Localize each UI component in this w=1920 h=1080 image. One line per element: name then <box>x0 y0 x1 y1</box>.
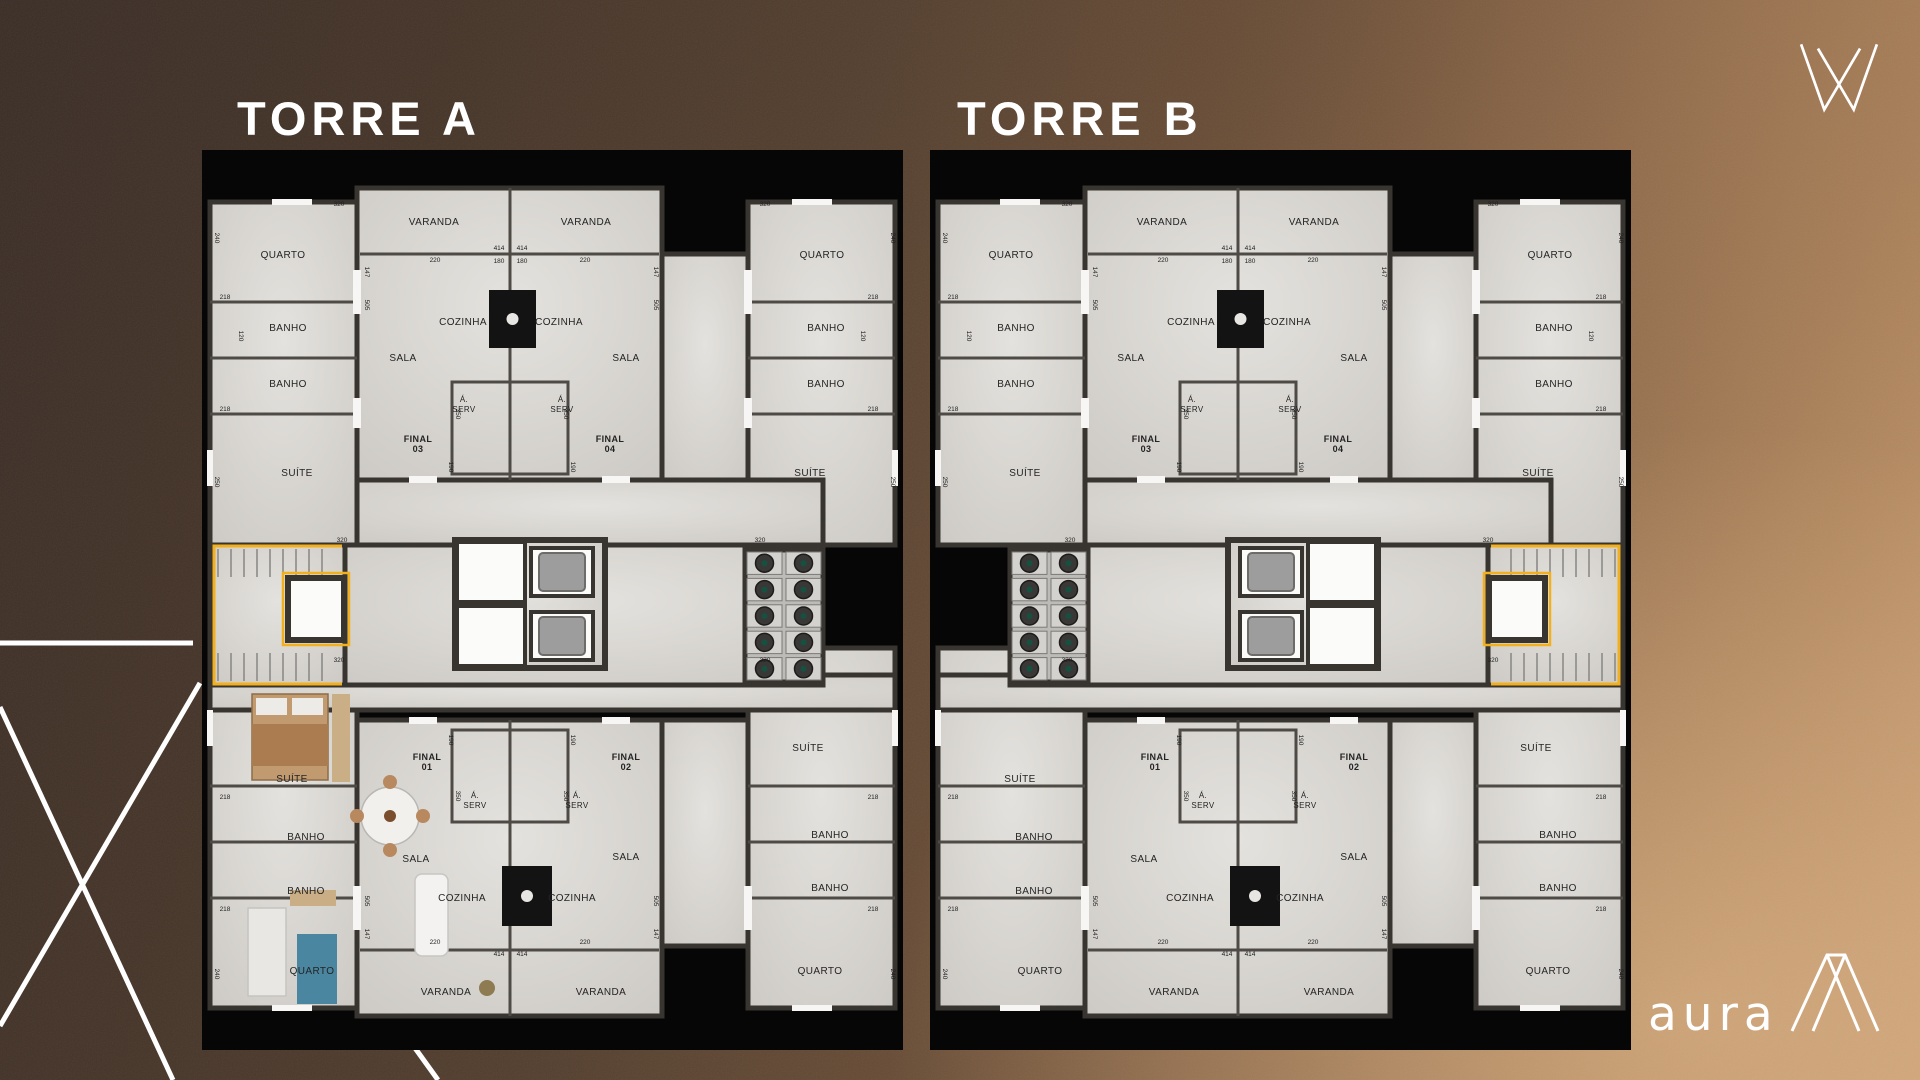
dimension-label: 240 <box>213 233 220 244</box>
dimension-label: 120 <box>859 331 866 342</box>
dimension-label: 218 <box>1596 406 1607 413</box>
room-label: VARANDA <box>1137 217 1187 228</box>
dimension-label: 147 <box>1380 929 1387 940</box>
room-label: QUARTO <box>1526 966 1571 977</box>
room-label: SALA <box>1117 353 1144 364</box>
dimension-label: 218 <box>220 794 231 801</box>
room-label: SUÍTE <box>276 772 307 785</box>
presentation-canvas: TORRE A TORRE B QUARTOQUARTOVARANDAVARAN… <box>0 0 1920 1080</box>
room-label: VARANDA <box>1289 217 1339 228</box>
dimension-label: 350 <box>454 791 461 802</box>
dimension-label: 414 <box>1222 245 1233 252</box>
dimension-label: 220 <box>430 939 441 946</box>
dimension-label: 350 <box>562 409 569 420</box>
dimension-label: 218 <box>868 906 879 913</box>
dimension-label: 414 <box>494 245 505 252</box>
room-label: SUÍTE <box>1004 772 1035 785</box>
room-label: BANHO <box>811 883 849 894</box>
room-label: COZINHA <box>535 317 583 328</box>
room-label: BANHO <box>811 830 849 841</box>
dimension-label: 147 <box>1380 267 1387 278</box>
dimension-label: 240 <box>941 233 948 244</box>
dimension-label: 240 <box>1617 233 1624 244</box>
dimension-label: 147 <box>1091 929 1098 940</box>
dimension-label: 218 <box>220 294 231 301</box>
dimension-label: 414 <box>1245 245 1256 252</box>
dimension-label: 350 <box>1182 791 1189 802</box>
dimension-label: 414 <box>517 245 528 252</box>
room-label: BANHO <box>1535 323 1573 334</box>
room-label: QUARTO <box>1528 250 1573 261</box>
room-label: QUARTO <box>989 250 1034 261</box>
dimension-label: 147 <box>363 267 370 278</box>
room-label: BANHO <box>997 323 1035 334</box>
dimension-label: 320 <box>1062 201 1073 208</box>
dimension-label: 218 <box>1596 794 1607 801</box>
room-label: SALA <box>389 353 416 364</box>
dimension-label: 505 <box>1091 300 1098 311</box>
dimension-label: 350 <box>1290 791 1297 802</box>
dimension-label: 220 <box>580 257 591 264</box>
plan-root: QUARTOQUARTOVARANDAVARANDABANHOBANHOBANH… <box>935 188 1626 1016</box>
room-label: QUARTO <box>800 250 845 261</box>
dimension-label: 147 <box>363 929 370 940</box>
dimension-label: 220 <box>1308 939 1319 946</box>
dimension-label: 220 <box>1158 257 1169 264</box>
dimension-label: 190 <box>1297 462 1304 473</box>
room-label: BANHO <box>1539 883 1577 894</box>
dimension-label: 120 <box>965 331 972 342</box>
dimension-label: 190 <box>1297 735 1304 746</box>
room-label: BANHO <box>1015 886 1053 897</box>
dimension-label: 190 <box>447 462 454 473</box>
room-label: BANHO <box>269 379 307 390</box>
room-label: VARANDA <box>576 987 626 998</box>
tower-b-panel: QUARTOQUARTOVARANDAVARANDABANHOBANHOBANH… <box>930 150 1631 1050</box>
dimension-label: 147 <box>652 929 659 940</box>
room-label: SALA <box>1340 852 1367 863</box>
room-label: VARANDA <box>409 217 459 228</box>
room-label: SUÍTE <box>1009 466 1040 479</box>
dimension-label: 220 <box>580 939 591 946</box>
room-label: QUARTO <box>290 966 335 977</box>
aura-logo: aura <box>1648 952 1881 1034</box>
dimension-label: 350 <box>562 791 569 802</box>
room-label: COZINHA <box>1166 893 1214 904</box>
room-label: VARANDA <box>561 217 611 228</box>
dimension-label: 505 <box>652 300 659 311</box>
room-label: QUARTO <box>1018 966 1063 977</box>
room-label: VARANDA <box>421 987 471 998</box>
dimension-label: 250 <box>1617 477 1624 488</box>
dimension-label: 505 <box>652 896 659 907</box>
a-frame-mark-icon <box>1789 952 1881 1034</box>
dimension-label: 320 <box>760 657 771 664</box>
dimension-label: 320 <box>1488 201 1499 208</box>
dimension-label: 218 <box>868 406 879 413</box>
dimension-label: 218 <box>948 906 959 913</box>
room-label: BANHO <box>269 323 307 334</box>
room-label: COZINHA <box>438 893 486 904</box>
room-label: BANHO <box>997 379 1035 390</box>
dimension-label: 250 <box>941 477 948 488</box>
dimension-label: 147 <box>652 267 659 278</box>
plan-root: QUARTOQUARTOVARANDAVARANDABANHOBANHOBANH… <box>207 188 898 1016</box>
dimension-label: 414 <box>1222 951 1233 958</box>
dimension-label: 414 <box>517 951 528 958</box>
room-label: COZINHA <box>548 893 596 904</box>
dimension-label: 240 <box>1617 969 1624 980</box>
dimension-label: 120 <box>1587 331 1594 342</box>
room-label: BANHO <box>1535 379 1573 390</box>
dimension-label: 505 <box>363 896 370 907</box>
room-label: BANHO <box>807 323 845 334</box>
dimension-label: 320 <box>1488 657 1499 664</box>
decor-line <box>415 1048 438 1080</box>
dimension-label: 240 <box>889 969 896 980</box>
room-label: SUÍTE <box>281 466 312 479</box>
decor-line <box>0 683 200 1026</box>
room-label: COZINHA <box>1167 317 1215 328</box>
dimension-label: 190 <box>1175 735 1182 746</box>
room-label: QUARTO <box>261 250 306 261</box>
tower-a-panel: QUARTOQUARTOVARANDAVARANDABANHOBANHOBANH… <box>202 150 903 1050</box>
dimension-label: 180 <box>1222 258 1233 265</box>
dimension-label: 220 <box>430 257 441 264</box>
room-label: QUARTO <box>798 966 843 977</box>
dimension-label: 218 <box>948 406 959 413</box>
dimension-label: 320 <box>1062 657 1073 664</box>
room-label: SUÍTE <box>792 741 823 754</box>
aura-logo-text: aura <box>1648 996 1779 1034</box>
floor-plan-torre-a: QUARTOQUARTOVARANDAVARANDABANHOBANHOBANH… <box>202 150 903 1050</box>
dimension-label: 505 <box>363 300 370 311</box>
dimension-label: 180 <box>517 258 528 265</box>
room-label: COZINHA <box>1263 317 1311 328</box>
room-label: BANHO <box>1539 830 1577 841</box>
dimension-label: 320 <box>334 201 345 208</box>
dimension-label: 350 <box>454 409 461 420</box>
room-label: SUÍTE <box>1520 741 1551 754</box>
dimension-label: 147 <box>1091 267 1098 278</box>
room-label: COZINHA <box>439 317 487 328</box>
dimension-label: 218 <box>1596 294 1607 301</box>
room-label: BANHO <box>807 379 845 390</box>
room-label: VARANDA <box>1149 987 1199 998</box>
room-label: SALA <box>402 854 429 865</box>
dimension-label: 320 <box>334 657 345 664</box>
dimension-label: 218 <box>868 794 879 801</box>
room-label: SALA <box>612 353 639 364</box>
floor-plan-torre-b: QUARTOQUARTOVARANDAVARANDABANHOBANHOBANH… <box>930 150 1631 1050</box>
room-label: BANHO <box>1015 832 1053 843</box>
dimension-label: 190 <box>569 735 576 746</box>
dimension-label: 350 <box>1290 409 1297 420</box>
dimension-label: 320 <box>337 537 348 544</box>
room-label: SALA <box>1340 353 1367 364</box>
dimension-label: 250 <box>889 477 896 488</box>
dimension-label: 218 <box>1596 906 1607 913</box>
dimension-label: 190 <box>569 462 576 473</box>
dimension-label: 250 <box>213 477 220 488</box>
dimension-label: 220 <box>1158 939 1169 946</box>
dimension-label: 240 <box>889 233 896 244</box>
core-layer <box>1010 540 1623 685</box>
dimension-label: 180 <box>1245 258 1256 265</box>
room-label: COZINHA <box>1276 893 1324 904</box>
dimension-label: 218 <box>220 406 231 413</box>
dimension-label: 240 <box>213 969 220 980</box>
room-label: BANHO <box>287 832 325 843</box>
dimension-label: 350 <box>1182 409 1189 420</box>
dimension-label: 414 <box>494 951 505 958</box>
dimension-label: 218 <box>948 794 959 801</box>
dimension-label: 505 <box>1380 300 1387 311</box>
tower-b-title: TORRE B <box>957 95 1203 142</box>
room-label: VARANDA <box>1304 987 1354 998</box>
dimension-label: 180 <box>494 258 505 265</box>
dimension-label: 120 <box>237 331 244 342</box>
room-label: SUÍTE <box>794 466 825 479</box>
dimension-label: 218 <box>948 294 959 301</box>
dimension-label: 505 <box>1091 896 1098 907</box>
crown-w-mark-icon <box>1799 42 1879 114</box>
dimension-label: 240 <box>941 969 948 980</box>
room-label: SUÍTE <box>1522 466 1553 479</box>
room-label: SALA <box>1130 854 1157 865</box>
room-label: SALA <box>612 852 639 863</box>
dimension-label: 505 <box>1380 896 1387 907</box>
decor-line <box>0 707 173 1080</box>
dimension-label: 220 <box>1308 257 1319 264</box>
dimension-label: 320 <box>755 537 766 544</box>
dimension-label: 320 <box>760 201 771 208</box>
dimension-label: 320 <box>1483 537 1494 544</box>
dimension-label: 218 <box>868 294 879 301</box>
core-layer <box>210 540 823 685</box>
room-label: BANHO <box>287 886 325 897</box>
dimension-label: 414 <box>1245 951 1256 958</box>
dimension-label: 190 <box>447 735 454 746</box>
dimension-label: 320 <box>1065 537 1076 544</box>
dimension-label: 218 <box>220 906 231 913</box>
tower-a-title: TORRE A <box>237 95 481 142</box>
dimension-label: 190 <box>1175 462 1182 473</box>
